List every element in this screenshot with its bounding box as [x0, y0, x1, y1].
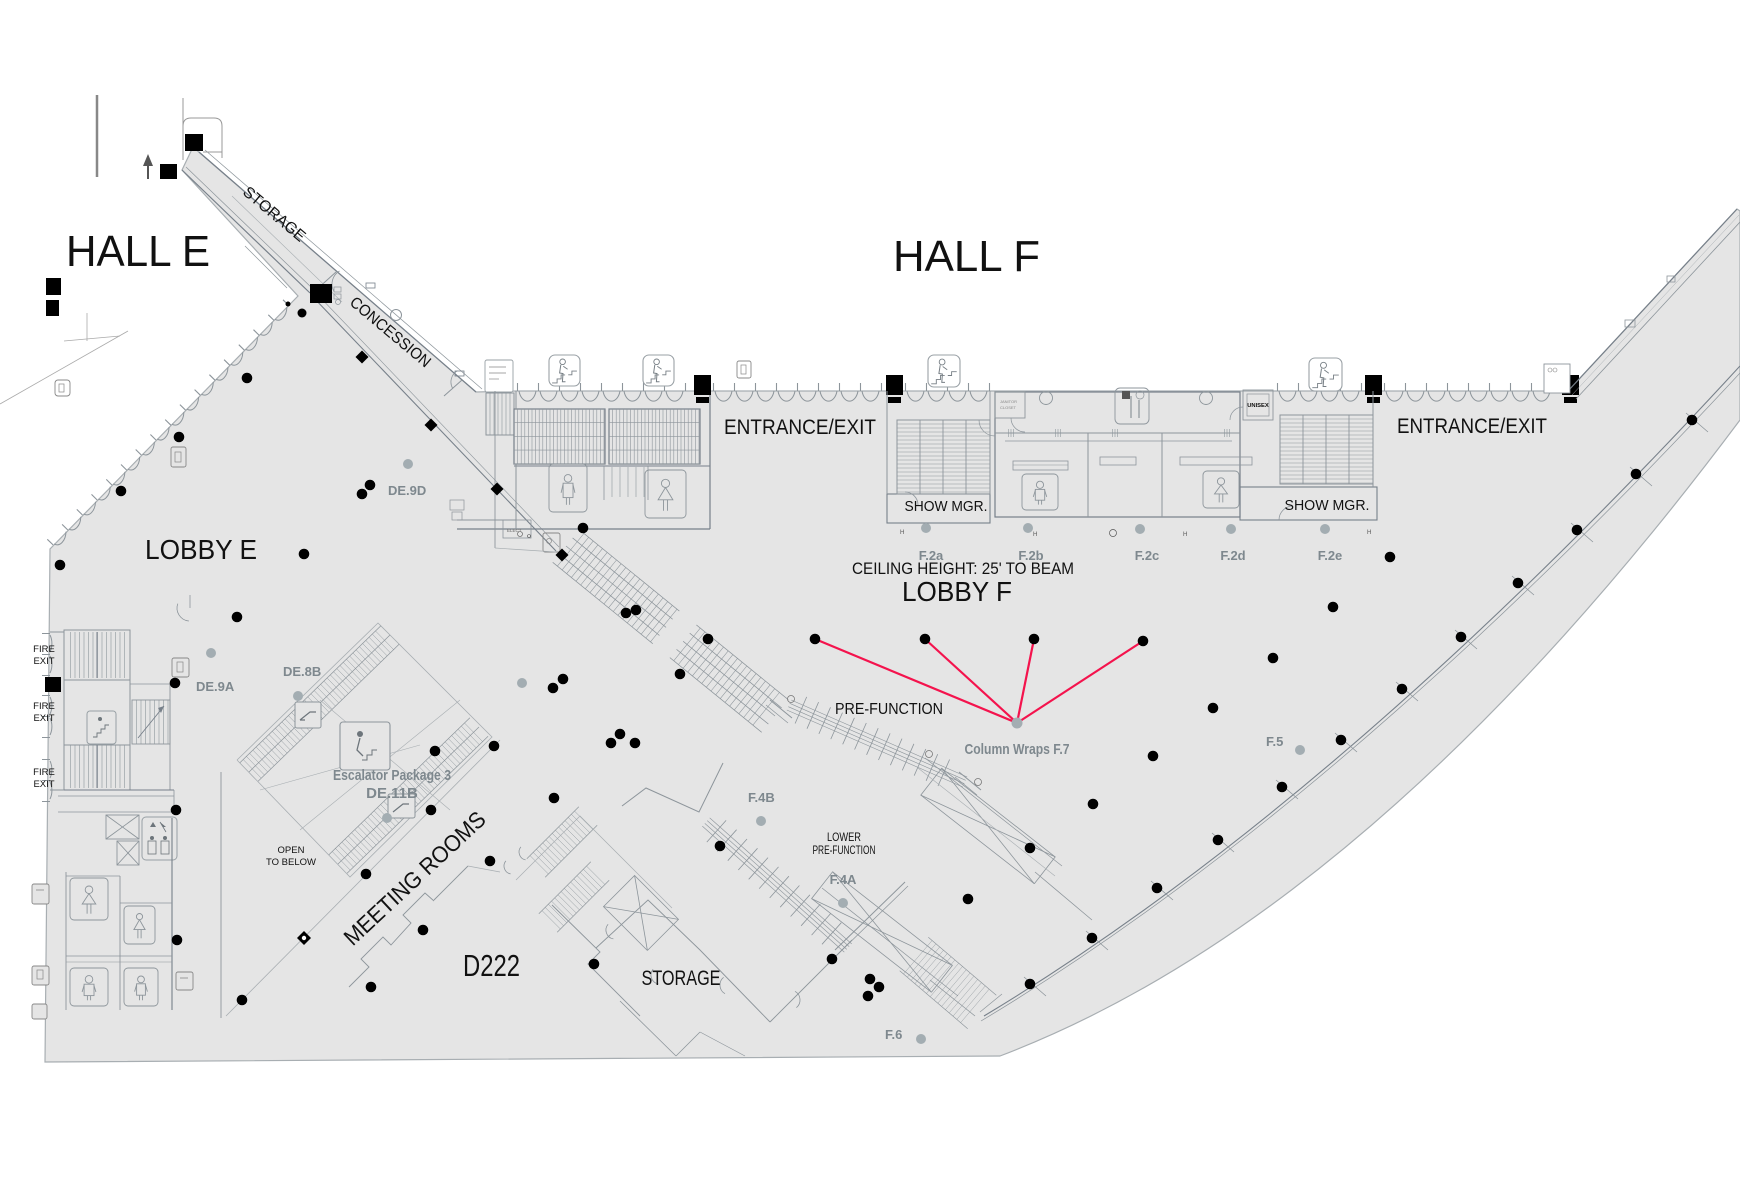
svg-text:EXIT: EXIT [33, 779, 54, 790]
svg-text:H: H [1033, 532, 1037, 538]
svg-text:CLOSET: CLOSET [1000, 405, 1017, 410]
svg-text:SHOW MGR.: SHOW MGR. [1285, 497, 1370, 514]
svg-text:TO BELOW: TO BELOW [266, 857, 316, 868]
svg-text:F.6: F.6 [885, 1027, 902, 1042]
svg-text:ELECT: ELECT [507, 528, 522, 533]
svg-text:F.2d: F.2d [1220, 548, 1245, 563]
svg-text:STORAGE: STORAGE [642, 967, 721, 990]
svg-text:F.2b: F.2b [1018, 548, 1043, 563]
svg-text:Escalator Package 3: Escalator Package 3 [333, 767, 451, 784]
svg-text:HALL E: HALL E [66, 227, 210, 276]
svg-text:D222: D222 [463, 948, 520, 983]
svg-text:ENTRANCE/EXIT: ENTRANCE/EXIT [724, 416, 876, 439]
svg-text:UNISEX: UNISEX [1247, 403, 1269, 409]
svg-text:H: H [900, 530, 904, 536]
svg-text:JANITOR: JANITOR [1000, 399, 1017, 404]
svg-text:FIRE: FIRE [33, 701, 55, 712]
svg-text:LOBBY F: LOBBY F [902, 576, 1012, 607]
svg-text:F.5: F.5 [1266, 734, 1283, 749]
svg-text:F.4A: F.4A [830, 872, 857, 887]
svg-text:LOBBY E: LOBBY E [145, 534, 257, 565]
svg-text:F.4B: F.4B [748, 790, 775, 805]
svg-text:F.2e: F.2e [1318, 548, 1343, 563]
svg-text:H: H [1367, 530, 1371, 536]
svg-text:DE.8B: DE.8B [283, 664, 321, 679]
svg-text:PRE-FUNCTION: PRE-FUNCTION [835, 701, 943, 718]
svg-text:DE.9D: DE.9D [388, 483, 426, 498]
svg-text:EXIT: EXIT [33, 713, 54, 724]
svg-text:FIRE: FIRE [33, 767, 55, 778]
svg-text:H: H [1183, 532, 1187, 538]
svg-text:OPEN: OPEN [278, 845, 305, 856]
svg-text:F.2a: F.2a [919, 548, 944, 563]
svg-text:PRE-FUNCTION: PRE-FUNCTION [813, 843, 876, 857]
svg-text:Column Wraps F.7: Column Wraps F.7 [965, 741, 1070, 758]
svg-text:DE.9A: DE.9A [196, 679, 235, 694]
svg-text:DE.11B: DE.11B [366, 785, 418, 802]
svg-text:FIRE: FIRE [33, 644, 55, 655]
svg-text:HALL F: HALL F [893, 232, 1040, 281]
svg-text:F.2c: F.2c [1135, 548, 1160, 563]
svg-text:LOWER: LOWER [827, 830, 861, 844]
svg-text:ENTRANCE/EXIT: ENTRANCE/EXIT [1397, 415, 1547, 438]
svg-text:EXIT: EXIT [33, 656, 54, 667]
